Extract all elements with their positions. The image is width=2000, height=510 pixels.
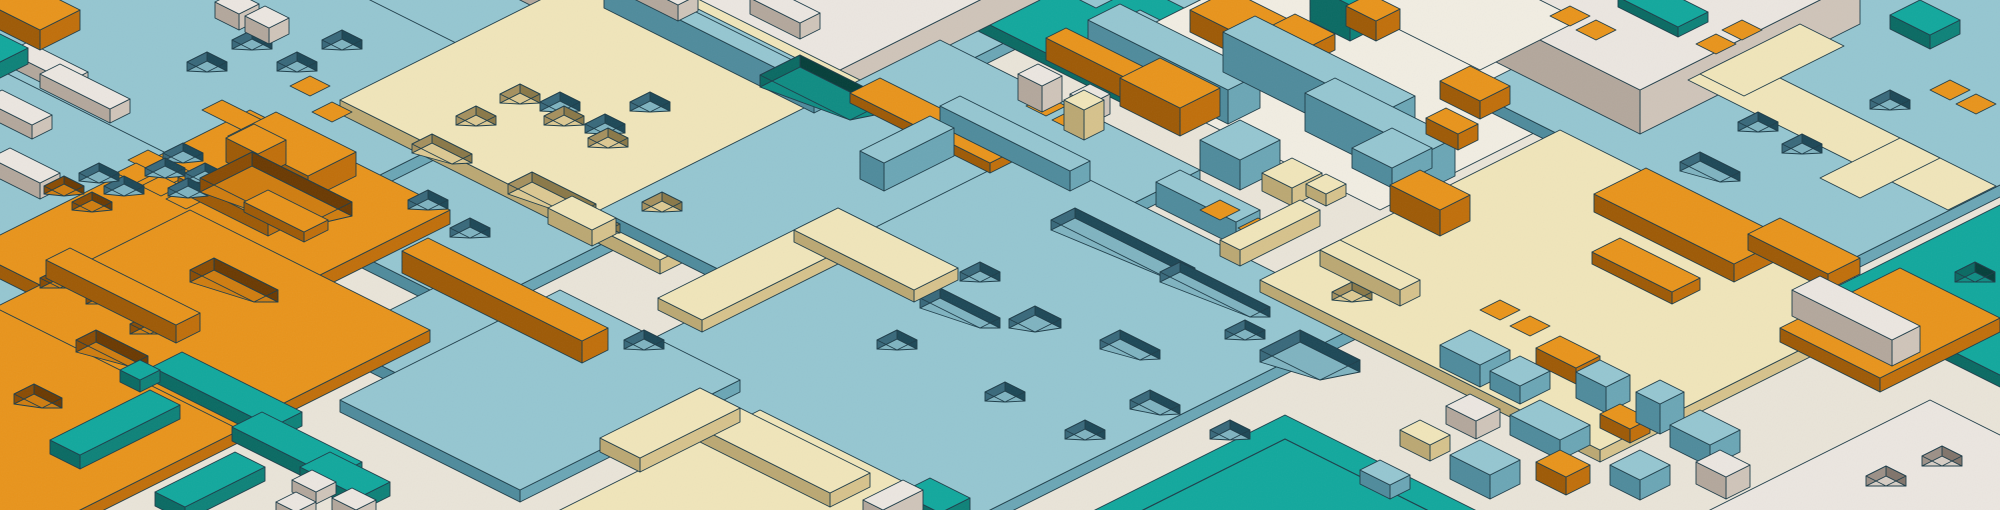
film-grain-overlay — [0, 0, 2000, 510]
isometric-scene — [0, 0, 2000, 510]
render-viewport — [0, 0, 2000, 510]
